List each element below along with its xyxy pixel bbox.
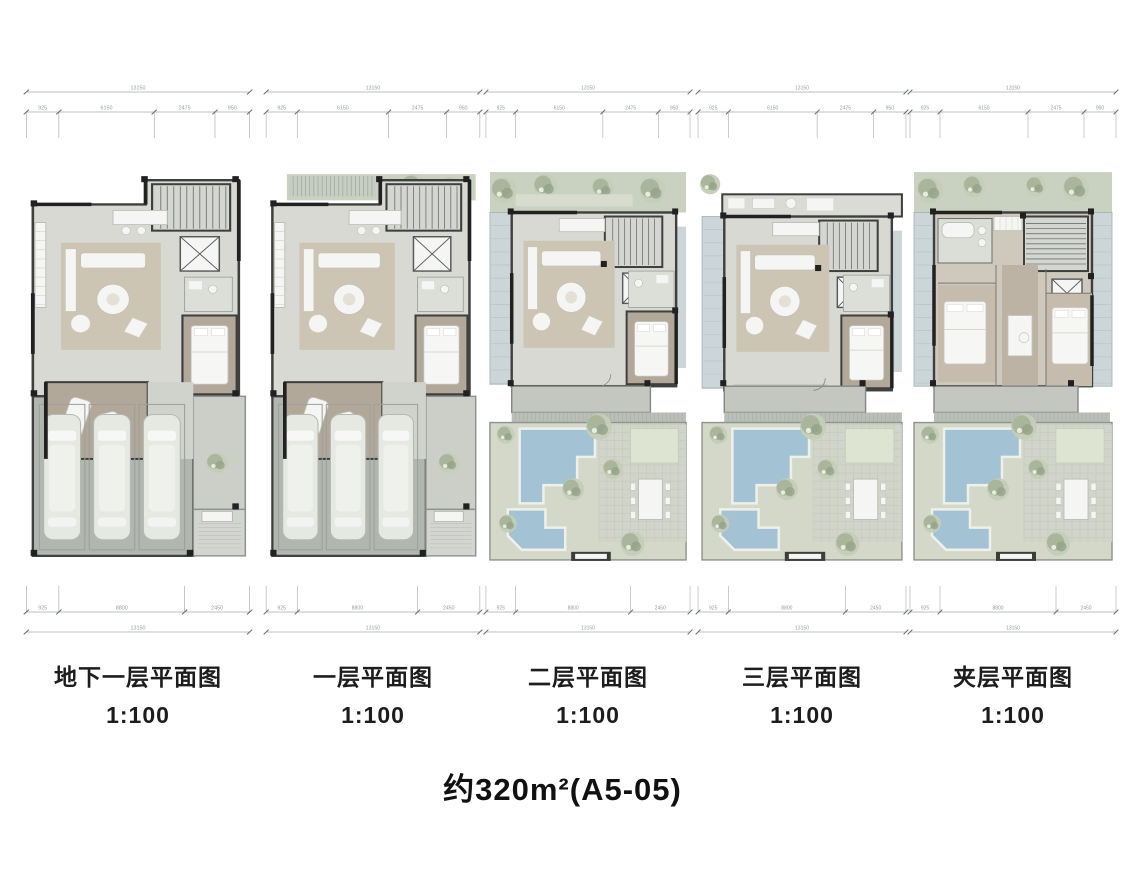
tree-icon [776,478,798,500]
svg-text:950: 950 [1096,106,1105,112]
dimension-line-top: 1315092561502475950 [482,82,694,138]
dimension-line-bottom: 9258800245013150 [262,586,484,642]
svg-text:925: 925 [277,606,286,612]
dimension-line-top: 1315092561502475950 [262,82,484,138]
tree-icon [835,532,859,556]
bed-icon [191,326,228,385]
svg-text:2450: 2450 [655,605,666,611]
elevator-icon [180,237,219,271]
garden-courtyard [914,413,1112,560]
bed-icon [944,301,986,364]
svg-text:6150: 6150 [554,105,565,111]
floorplan-label: 一层平面图 [262,658,484,692]
tree-icon [206,453,228,473]
svg-text:925: 925 [38,606,47,612]
dimension-line-bottom: 9258800245013150 [482,586,694,642]
svg-text:2475: 2475 [1050,106,1061,112]
floorplan-drawing [262,164,484,568]
tree-icon [1063,175,1089,201]
bed-icon [1052,307,1088,364]
bed-icon [635,322,669,377]
svg-text:6150: 6150 [767,106,778,112]
plan-garden2 [700,174,902,561]
tree-icon [987,478,1009,500]
svg-text:8800: 8800 [352,606,364,612]
floorplan-drawing [906,164,1120,568]
floorplan-panel-floor2: 1315092561502475950 9258800245013150 二层平… [482,82,694,729]
svg-text:13150: 13150 [1006,86,1020,92]
car-icon [44,414,81,539]
svg-text:13150: 13150 [1006,626,1020,632]
tree-icon [603,459,623,479]
floorplan-label: 二层平面图 [482,658,694,692]
car-icon [330,414,365,539]
tree-icon [1028,459,1048,479]
svg-text:13150: 13150 [581,625,595,631]
svg-text:950: 950 [886,106,895,112]
tree-icon [963,175,985,197]
floorplan-label: 夹层平面图 [906,658,1120,692]
tree-icon [700,174,720,194]
car-icon [143,414,180,539]
plan-house2 [270,174,475,556]
floorplan-scale: 1:100 [906,702,1120,729]
dimension-line-bottom: 9258800245013150 [22,586,254,642]
tree-icon [1011,413,1037,439]
svg-text:925: 925 [497,105,505,111]
floorplan-scale: 1:100 [262,702,484,729]
svg-text:950: 950 [670,105,678,111]
svg-text:2475: 2475 [625,105,636,111]
tree-icon [800,413,826,439]
svg-text:8800: 8800 [781,606,792,612]
svg-text:6150: 6150 [337,106,349,112]
car-icon [283,414,318,539]
tree-icon [491,177,517,203]
svg-text:8800: 8800 [568,605,579,611]
floorplan-panel-basement: 1315092561502475950 9258800245013150 地下一… [22,82,254,729]
tree-icon [562,478,584,500]
svg-text:8800: 8800 [992,606,1003,612]
floorplan-scale: 1:100 [694,702,910,729]
svg-text:925: 925 [709,106,718,112]
dimension-line-top: 1315092561502475950 [906,82,1120,138]
svg-text:8800: 8800 [116,606,128,612]
bed-icon [849,326,883,381]
svg-text:2450: 2450 [443,606,455,612]
floorplan-scale: 1:100 [482,702,694,729]
floorplan-panel-floor3: 1315092561502475950 9258800245013150 三层平… [694,82,910,729]
svg-text:2450: 2450 [1080,606,1091,612]
tree-icon [1046,532,1070,556]
garage-cars [279,404,418,549]
svg-text:13150: 13150 [130,86,145,92]
dimension-line-top: 1315092561502475950 [22,82,254,138]
bed-icon [424,326,459,385]
tree-icon [499,514,517,532]
tree-icon [640,177,666,203]
svg-text:925: 925 [38,106,47,112]
car-icon [94,414,131,539]
svg-text:13150: 13150 [795,626,809,632]
staircase [1024,217,1088,272]
tree-icon [438,453,459,473]
svg-text:925: 925 [921,606,930,612]
svg-text:925: 925 [277,106,286,112]
tree-icon [817,459,837,479]
plan-house1 [31,176,246,556]
svg-text:925: 925 [709,606,718,612]
area-title: 约320m²(A5-05) [0,764,1125,809]
svg-text:13150: 13150 [795,86,809,92]
tree-icon [497,426,515,444]
floorplan-label: 地下一层平面图 [22,658,254,692]
svg-text:2475: 2475 [179,106,191,112]
elevator-icon [413,237,450,271]
floorplan-label: 三层平面图 [694,658,910,692]
bathroom [938,219,992,263]
svg-text:6150: 6150 [978,106,989,112]
tree-icon [923,514,941,532]
floorplan-sheet: 1315092561502475950 9258800245013150 地下一… [0,0,1125,878]
svg-text:13150: 13150 [581,85,595,91]
svg-text:950: 950 [228,106,237,112]
car-icon [378,414,413,539]
tree-icon [711,514,729,532]
svg-text:950: 950 [459,106,468,112]
garden-courtyard [490,413,686,560]
dimension-line-bottom: 9258800245013150 [694,586,910,642]
floorplan-panel-floor1: 1315092561502475950 9258800245013150 一层平… [262,82,484,729]
plan-garden1 [490,172,686,561]
tree-icon [709,426,727,444]
floorplan-drawing [694,164,910,568]
tree-icon [921,426,939,444]
svg-text:2475: 2475 [412,106,424,112]
tree-icon [1026,176,1046,196]
tree-icon [586,413,612,439]
tree-icon [621,532,645,556]
svg-text:2450: 2450 [211,606,223,612]
floorplan-scale: 1:100 [22,702,254,729]
floorplan-drawing [482,164,694,568]
garden-courtyard [702,413,902,560]
svg-text:2450: 2450 [870,606,881,612]
floorplan-drawing [22,164,254,568]
svg-text:13150: 13150 [366,86,381,92]
tree-icon [917,177,943,203]
plan-bedrooms [914,172,1112,561]
dimension-line-bottom: 9258800245013150 [906,586,1120,642]
svg-text:13150: 13150 [130,626,145,632]
svg-text:2475: 2475 [840,106,851,112]
svg-text:13150: 13150 [366,626,381,632]
dimension-line-top: 1315092561502475950 [694,82,910,138]
floorplan-panel-mezzanine: 1315092561502475950 9258800245013150 夹层平… [906,82,1120,729]
svg-text:925: 925 [497,605,505,611]
svg-text:6150: 6150 [101,106,113,112]
svg-text:925: 925 [921,106,930,112]
garage-cars [39,404,184,549]
